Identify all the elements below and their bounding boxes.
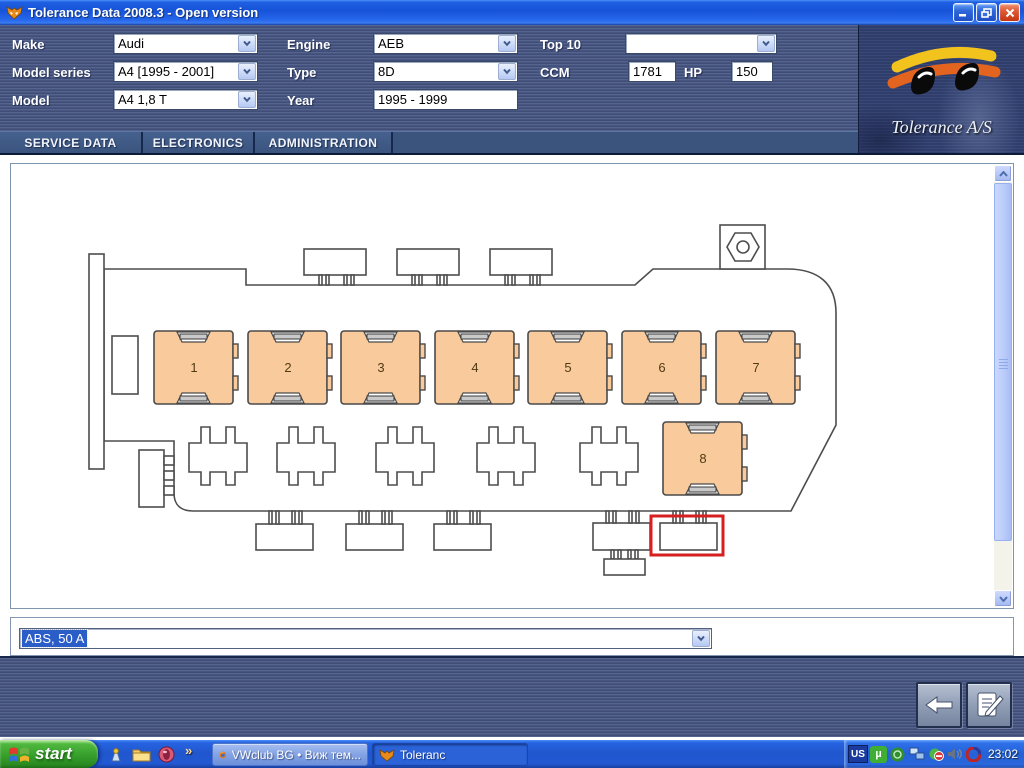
window-title: Tolerance Data 2008.3 - Open version [28,5,951,20]
top-connector-3[interactable] [490,249,552,285]
relay-5[interactable]: 5 [528,331,612,404]
ccm-field[interactable]: 1781 [628,61,676,82]
engine-select[interactable]: AEB [373,33,518,54]
hp-value: 150 [732,64,772,79]
relay-number: 3 [377,360,384,375]
tolerance-logo-icon [859,25,1024,115]
hp-label: HP [684,65,702,80]
taskbar: start » VWclub BG • Виж тем... Toleranc [0,740,1024,768]
model-value: A4 1,8 T [114,92,237,107]
scroll-down-icon[interactable] [994,590,1012,607]
year-label: Year [287,93,314,108]
bottom-connector-3[interactable] [434,511,491,550]
year-field[interactable]: 1995 - 1999 [373,89,518,110]
make-select[interactable]: Audi [113,33,258,54]
make-dropdown-arrow-icon[interactable] [238,35,256,52]
inner-slot [112,336,138,394]
fuse-select-panel: ABS, 50 A [10,617,1014,656]
utorrent-tray-icon[interactable]: µ [870,746,887,763]
fuse-select[interactable]: ABS, 50 A [19,628,712,649]
report-button[interactable] [966,682,1012,728]
fox-icon [379,747,395,763]
utorrent-glyph: µ [875,748,881,760]
engine-value: AEB [374,36,497,51]
fuse-select-value: ABS, 50 A [22,630,87,647]
messenger-status-tray-icon[interactable] [927,746,944,763]
windows-flag-icon [8,744,30,764]
restore-button[interactable] [976,3,997,22]
quicklaunch-folder-icon[interactable] [131,744,151,764]
ccm-label: CCM [540,65,570,80]
relay-1[interactable]: 1 [154,331,238,404]
start-label: start [35,744,72,764]
fuse-select-dropdown-arrow-icon[interactable] [692,630,710,647]
top10-dropdown-arrow-icon[interactable] [757,35,775,52]
type-value: 8D [374,64,497,79]
media-player-tray-icon[interactable] [889,746,906,763]
brand-name: Tolerance A/S [859,117,1024,138]
back-arrow-icon [924,695,954,715]
make-value: Audi [114,36,237,51]
vertical-scrollbar[interactable] [994,165,1012,607]
top10-select[interactable] [625,33,777,54]
antivirus-tray-icon[interactable] [965,746,982,763]
relay-2[interactable]: 2 [248,331,332,404]
relay-number: 2 [284,360,291,375]
type-label: Type [287,65,316,80]
tolerance-data-window: Tolerance Data 2008.3 - Open version Mak… [0,0,1024,768]
relay-8[interactable]: 8 [663,422,747,495]
type-dropdown-arrow-icon[interactable] [498,63,516,80]
bottom-connector-2[interactable] [346,511,403,550]
hp-field[interactable]: 150 [731,61,773,82]
close-button[interactable] [999,3,1020,22]
brand-panel: Tolerance A/S [858,25,1024,153]
title-bar: Tolerance Data 2008.3 - Open version [0,0,1024,25]
tab-administration[interactable]: ADMINISTRATION [255,132,393,153]
model-series-select[interactable]: A4 [1995 - 2001] [113,61,258,82]
engine-dropdown-arrow-icon[interactable] [498,35,516,52]
relay-number: 6 [658,360,665,375]
model-series-dropdown-arrow-icon[interactable] [238,63,256,80]
scrollbar-thumb[interactable] [994,183,1012,541]
tray-clock: 23:02 [988,747,1018,761]
tab-service-data[interactable]: SERVICE DATA [0,132,143,153]
tab-electronics[interactable]: ELECTRONICS [143,132,255,153]
taskbar-item-toleranc[interactable]: Toleranc [372,743,528,766]
make-label: Make [12,37,45,52]
relay-4[interactable]: 4 [435,331,519,404]
top-connector-1[interactable] [304,249,366,285]
bottom-connector-4[interactable] [593,511,650,575]
language-indicator[interactable]: US [848,745,868,763]
model-label: Model [12,93,50,108]
minimize-button[interactable] [953,3,974,22]
relay-6[interactable]: 6 [622,331,706,404]
report-document-icon [974,690,1004,720]
volume-tray-icon[interactable] [946,746,963,763]
taskbar-item-label: VWclub BG • Виж тем... [232,748,361,762]
engine-label: Engine [287,37,330,52]
system-tray: US µ 23:02 [844,740,1024,768]
model-dropdown-arrow-icon[interactable] [238,91,256,108]
bolt-mount [720,225,765,269]
scroll-up-icon[interactable] [994,165,1012,182]
relay-number: 4 [471,360,478,375]
top-connector-2[interactable] [397,249,459,285]
model-series-value: A4 [1995 - 2001] [114,64,237,79]
relay-number: 7 [752,360,759,375]
bottom-toolbar [0,656,1024,737]
ccm-value: 1781 [629,64,675,79]
quicklaunch-overflow-icon[interactable]: » [185,743,192,758]
left-mount-tab [89,254,104,469]
relay-number: 1 [190,360,197,375]
relay-number: 5 [564,360,571,375]
firefox-icon [219,747,227,763]
taskbar-item-vwclub[interactable]: VWclub BG • Виж тем... [212,743,368,766]
top10-label: Top 10 [540,37,581,52]
back-button[interactable] [916,682,962,728]
quicklaunch-opera-icon[interactable] [156,744,176,764]
type-select[interactable]: 8D [373,61,518,82]
network-tray-icon[interactable] [908,746,925,763]
year-value: 1995 - 1999 [374,92,517,107]
relay-7[interactable]: 7 [716,331,800,404]
fusebox-diagram-panel: 12345678 [10,163,1014,609]
bottom-connector-1[interactable] [256,511,313,550]
quicklaunch-app-icon[interactable] [106,744,126,764]
taskbar-item-label: Toleranc [400,748,445,762]
left-connector-block[interactable] [139,450,174,507]
app-fox-icon [6,4,23,21]
fusebox-diagram: 12345678 [12,165,996,609]
relay-3[interactable]: 3 [341,331,425,404]
start-button[interactable]: start [0,740,98,768]
relay-number: 8 [699,451,706,466]
content-region: 12345678 [0,155,1024,656]
model-select[interactable]: A4 1,8 T [113,89,258,110]
model-series-label: Model series [12,65,91,80]
